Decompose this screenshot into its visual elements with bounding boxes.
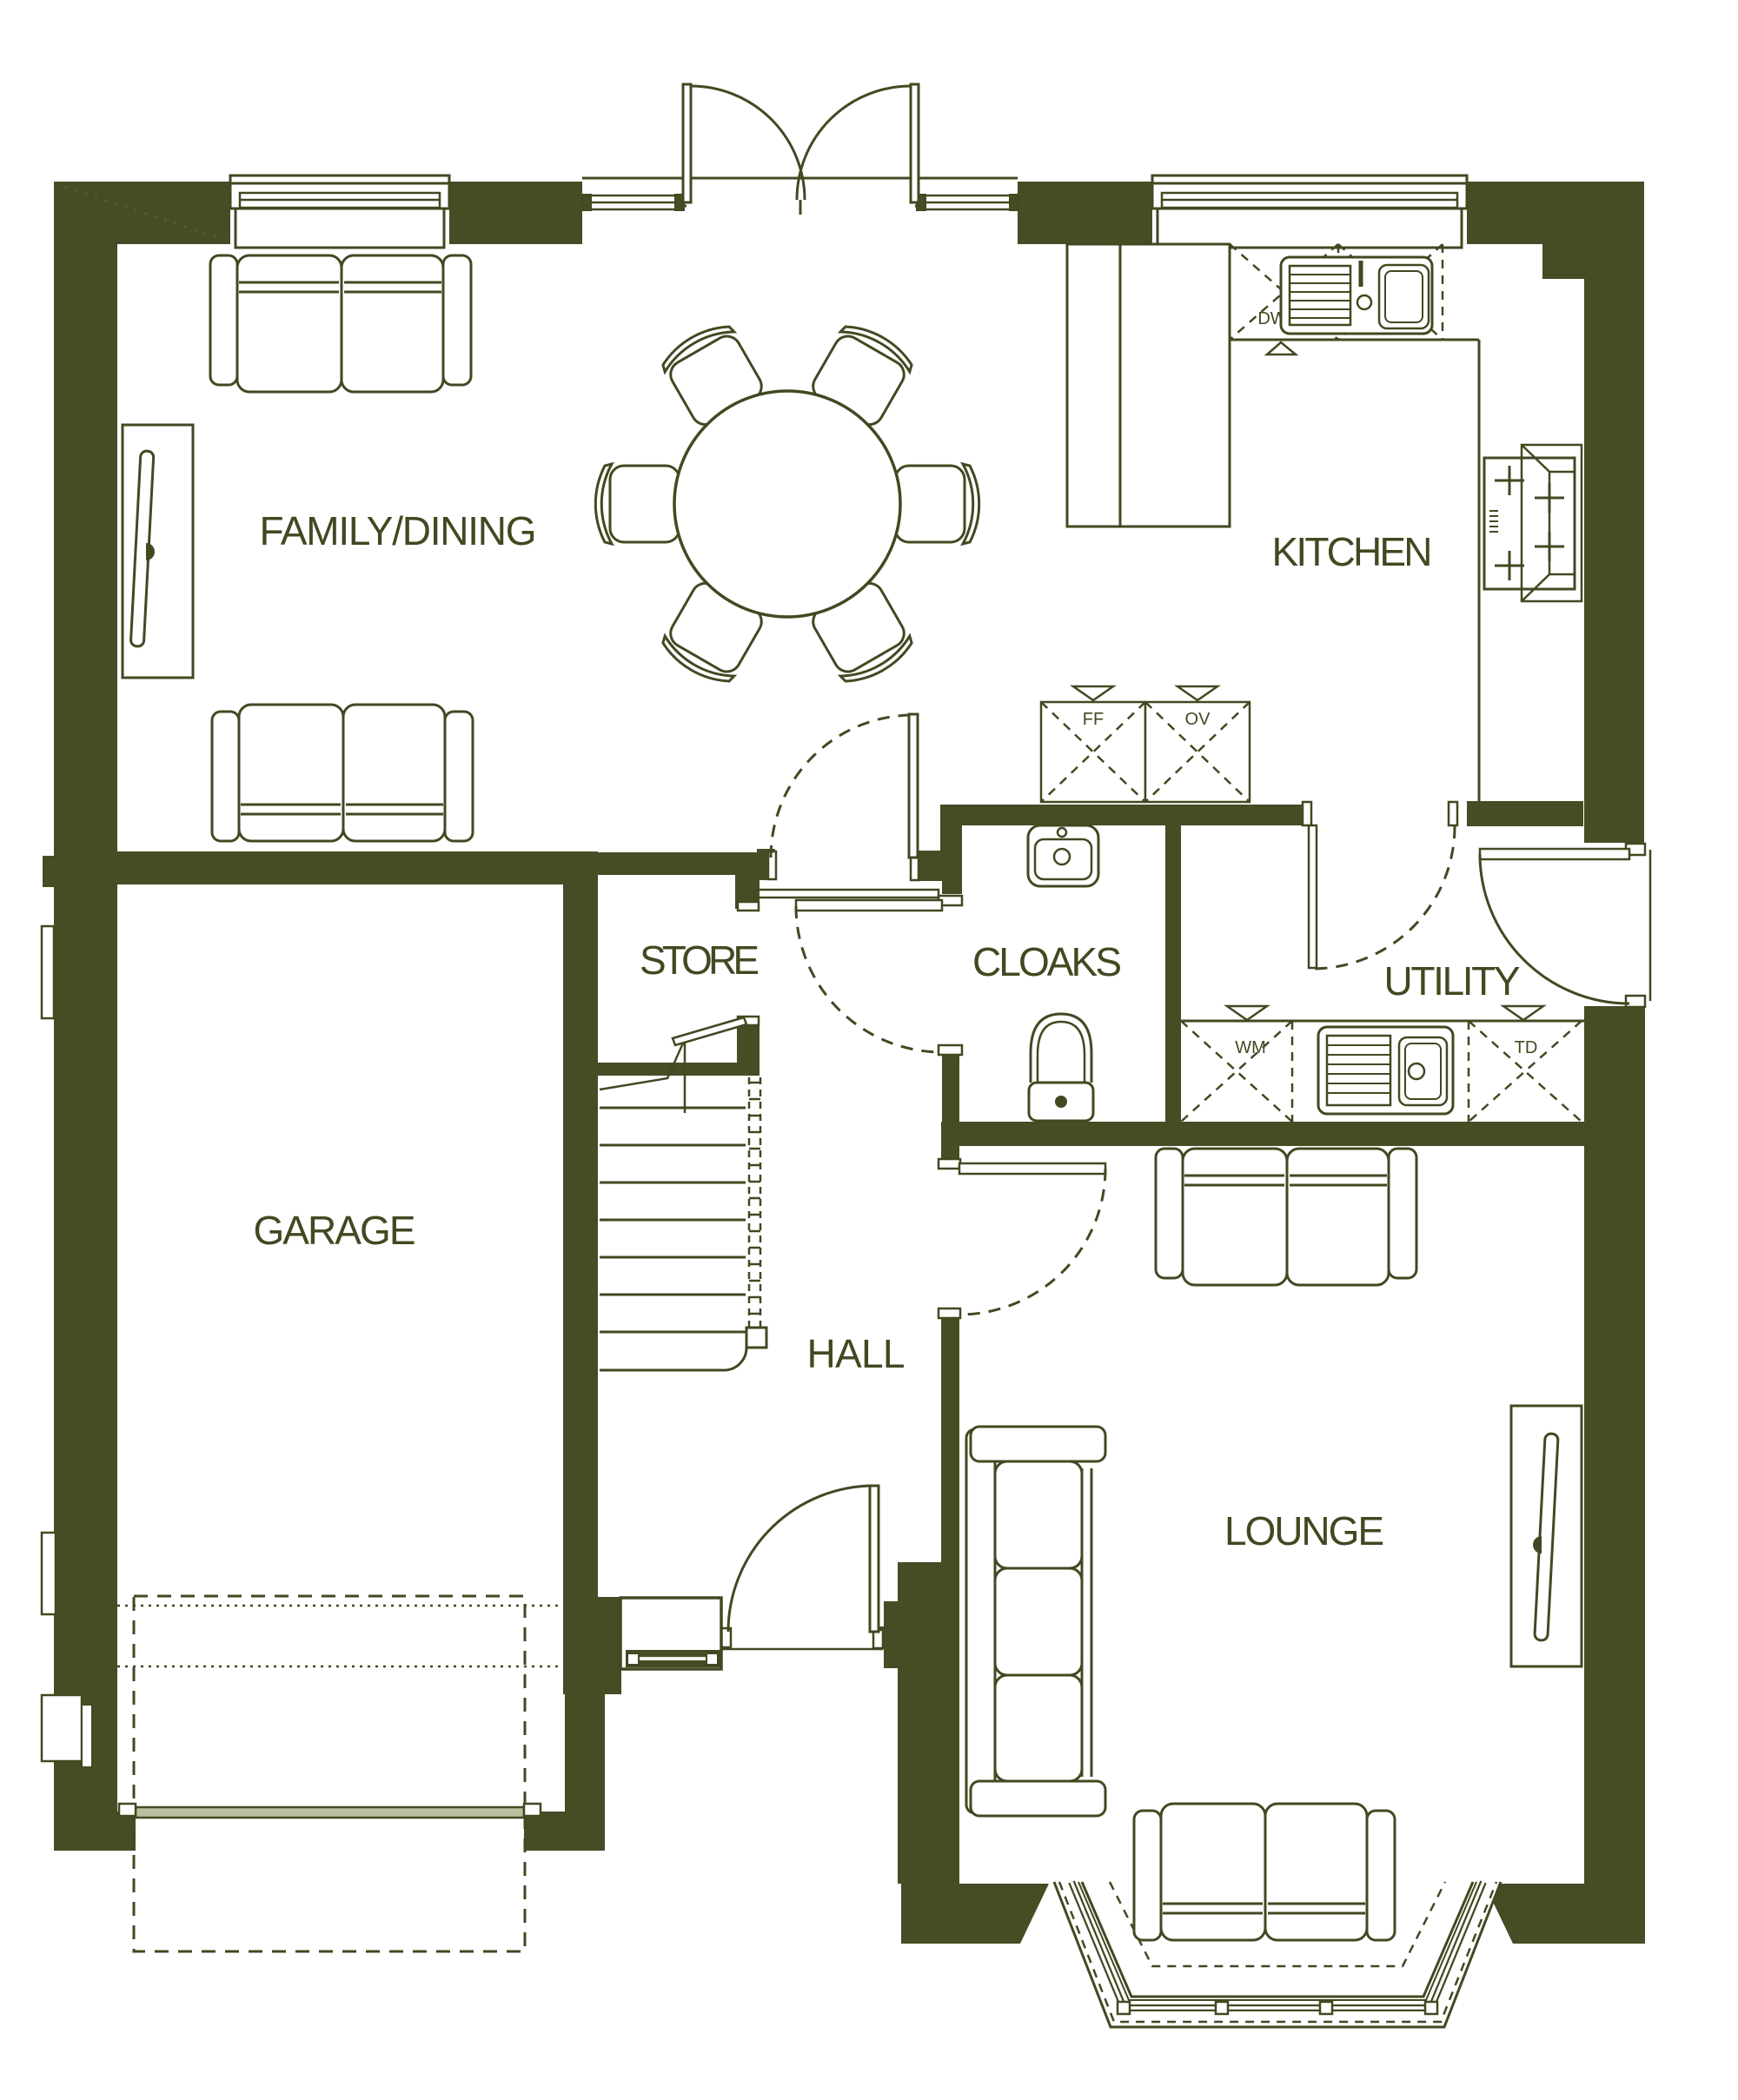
svg-text:KITCHEN: KITCHEN [1272, 529, 1433, 574]
svg-text:STORE: STORE [640, 937, 760, 983]
svg-text:FF: FF [1083, 710, 1104, 729]
svg-text:UTILITY: UTILITY [1384, 958, 1521, 1004]
svg-text:GARAGE: GARAGE [254, 1208, 416, 1253]
svg-text:HALL: HALL [807, 1331, 905, 1376]
svg-text:TD: TD [1515, 1038, 1538, 1057]
svg-text:CLOAKS: CLOAKS [972, 939, 1122, 984]
svg-text:WM: WM [1235, 1038, 1266, 1057]
svg-text:LOUNGE: LOUNGE [1224, 1508, 1384, 1553]
svg-text:FAMILY/DINING: FAMILY/DINING [260, 508, 537, 553]
svg-text:OV: OV [1185, 710, 1211, 729]
